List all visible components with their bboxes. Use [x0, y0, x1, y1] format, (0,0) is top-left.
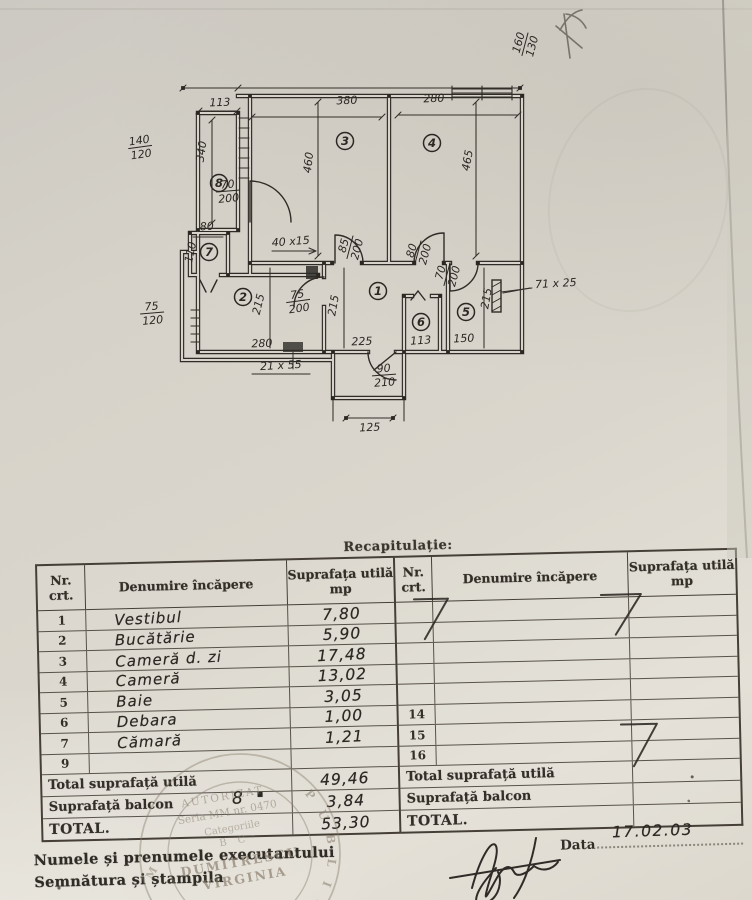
ink-dot: [57, 886, 60, 889]
stamp-line4: B C: [219, 833, 251, 849]
page-edge-shade: [727, 0, 752, 558]
scanned-document: 1133802803404604658011021521521528022511…: [0, 0, 752, 900]
faint-stamp-impression: [529, 72, 748, 328]
signature: [450, 838, 560, 900]
handwritten-scribble: [556, 10, 586, 58]
round-stamp: P U B L I C E M AUTORIZAT Seria MM nr. 0…: [140, 754, 340, 900]
photo-artifacts: P U B L I C E M AUTORIZAT Seria MM nr. 0…: [0, 0, 752, 900]
stamp-ring-letter: M: [143, 865, 160, 882]
